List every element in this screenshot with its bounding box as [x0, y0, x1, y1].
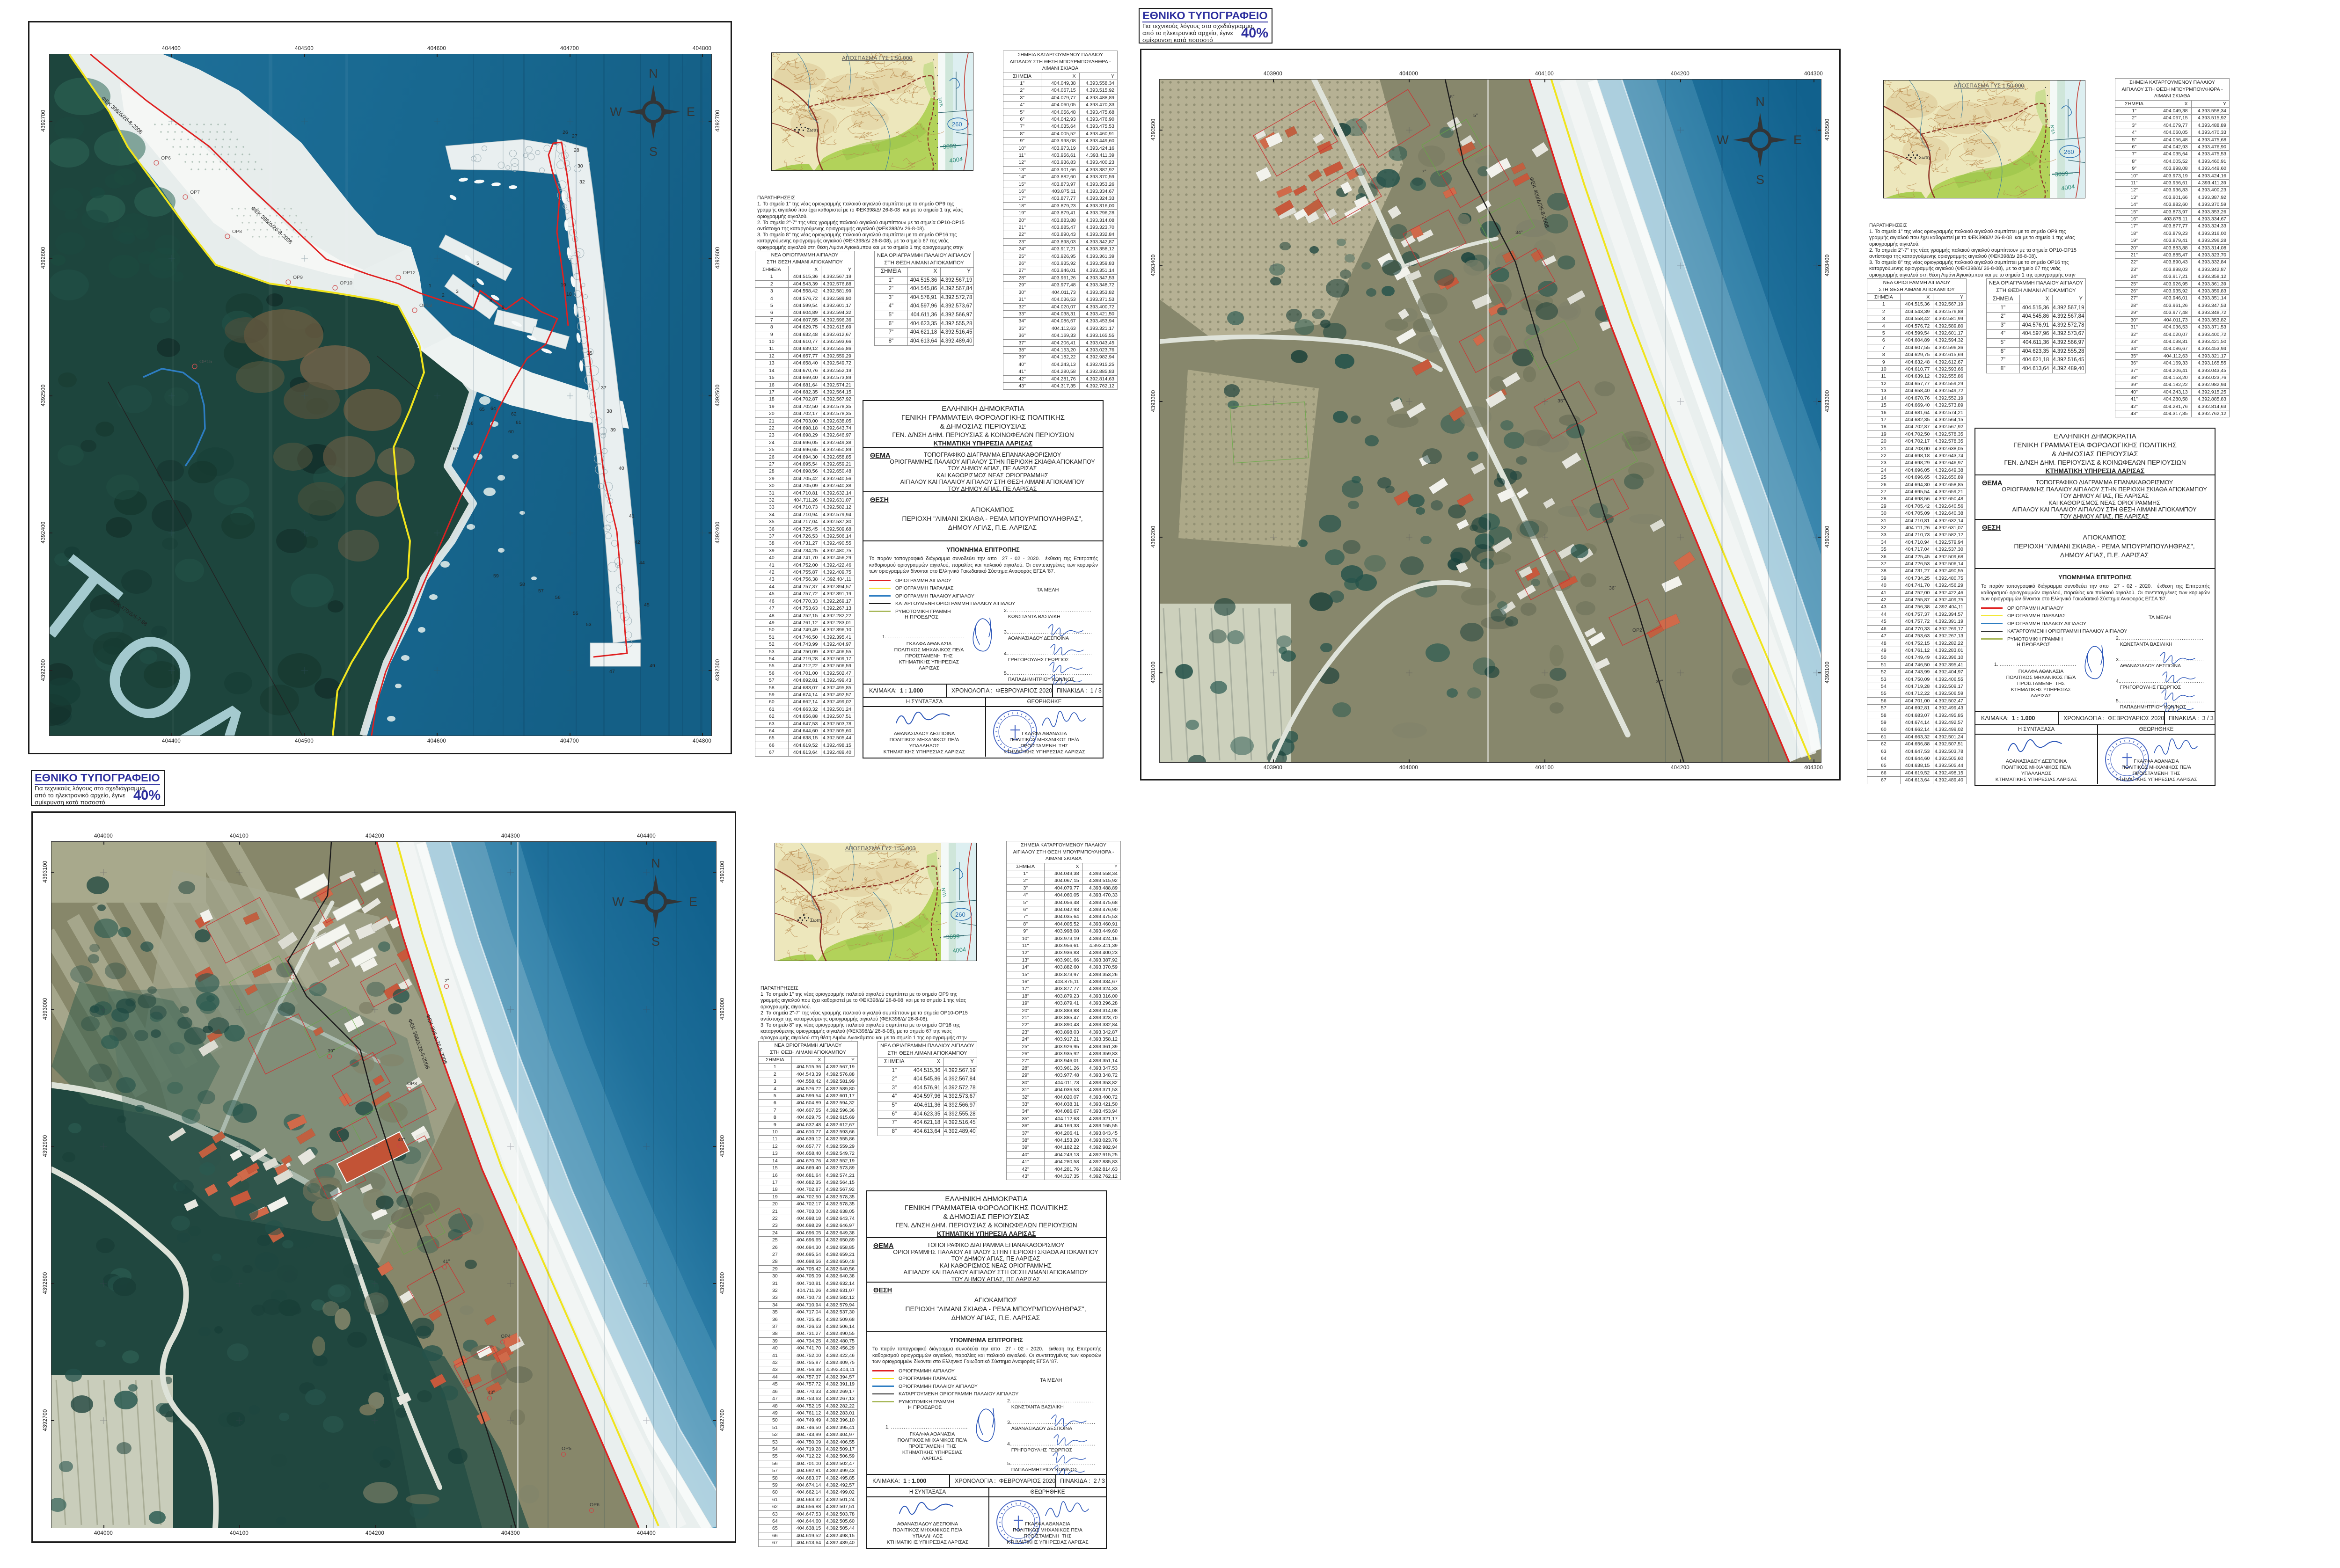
svg-text:60: 60 — [508, 429, 514, 435]
svg-text:19: 19 — [561, 282, 566, 288]
svg-text:ΟΡ6: ΟΡ6 — [590, 1502, 600, 1508]
svg-text:Σωτη: Σωτη — [1919, 155, 1930, 160]
svg-text:32: 32 — [579, 179, 585, 185]
svg-text:ΟΡ5: ΟΡ5 — [562, 1446, 571, 1451]
svg-text:ΟΡ7: ΟΡ7 — [190, 190, 200, 195]
svg-text:7ʺ: 7ʺ — [1422, 169, 1426, 175]
svg-text:57: 57 — [538, 588, 544, 594]
svg-text:5ʺ: 5ʺ — [1473, 113, 1478, 118]
svg-text:18: 18 — [566, 292, 572, 297]
svg-text:36ʺ: 36ʺ — [1609, 585, 1616, 591]
svg-text:64: 64 — [490, 406, 496, 411]
svg-text:E: E — [687, 105, 695, 119]
svg-text:2: 2 — [442, 292, 445, 298]
svg-text:49: 49 — [650, 663, 655, 669]
svg-text:N: N — [1755, 95, 1765, 109]
svg-text:59: 59 — [493, 573, 499, 579]
svg-text:56: 56 — [555, 595, 561, 600]
svg-text:ΟΡ3: ΟΡ3 — [407, 1081, 417, 1087]
svg-text:35: 35 — [587, 350, 592, 356]
svg-text:260: 260 — [955, 911, 965, 918]
svg-text:ΑΠΟΣΠΑΣΜΑ ΓΥΣ 1:50.000: ΑΠΟΣΠΑΣΜΑ ΓΥΣ 1:50.000 — [842, 55, 913, 61]
svg-text:27: 27 — [572, 133, 578, 139]
svg-text:260: 260 — [2064, 148, 2074, 155]
svg-text:ΟΡ13: ΟΡ13 — [419, 303, 432, 308]
svg-text:W: W — [1717, 133, 1729, 147]
svg-text:40ʺ: 40ʺ — [398, 1137, 405, 1143]
svg-text:65: 65 — [479, 407, 485, 412]
svg-text:S: S — [1756, 173, 1764, 187]
svg-text:S: S — [649, 145, 658, 159]
svg-text:39ʺ: 39ʺ — [328, 1048, 335, 1054]
svg-text:41: 41 — [629, 513, 635, 519]
svg-text:ΟΡ8: ΟΡ8 — [232, 229, 242, 234]
svg-text:6ʺ: 6ʺ — [1450, 94, 1455, 100]
svg-text:ΟΡ6: ΟΡ6 — [161, 155, 171, 161]
svg-text:43ʺ: 43ʺ — [488, 1390, 495, 1395]
svg-text:30: 30 — [578, 163, 583, 169]
svg-text:E: E — [1793, 133, 1802, 147]
svg-text:35ʺ: 35ʺ — [1558, 398, 1565, 404]
svg-text:38ʺ: 38ʺ — [290, 969, 298, 974]
svg-text:ΑΠΟΣΠΑΣΜΑ ΓΥΣ 1:50.000: ΑΠΟΣΠΑΣΜΑ ΓΥΣ 1:50.000 — [1954, 82, 2025, 89]
svg-text:260: 260 — [952, 121, 962, 128]
svg-text:ΑΠΟΣΠΑΣΜΑ ΓΥΣ 1:50.000: ΑΠΟΣΠΑΣΜΑ ΓΥΣ 1:50.000 — [845, 845, 916, 852]
svg-text:W: W — [612, 895, 624, 909]
svg-text:E: E — [689, 895, 697, 909]
svg-text:N: N — [651, 856, 660, 870]
svg-text:ΟΡ4: ΟΡ4 — [501, 1334, 511, 1339]
svg-text:66: 66 — [468, 421, 474, 426]
svg-text:1: 1 — [429, 283, 431, 289]
svg-text:S: S — [651, 934, 660, 948]
svg-text:Σωτη: Σωτη — [807, 128, 818, 133]
svg-text:W: W — [610, 105, 622, 119]
svg-text:47: 47 — [609, 669, 615, 674]
svg-text:37ʺ: 37ʺ — [1656, 679, 1663, 685]
svg-text:42: 42 — [635, 540, 640, 545]
svg-text:26: 26 — [563, 130, 568, 135]
svg-text:ΟΡ2: ΟΡ2 — [1632, 627, 1642, 633]
svg-text:5: 5 — [476, 261, 479, 266]
svg-text:2ʺ: 2ʺ — [445, 978, 449, 984]
svg-text:ΟΡ9: ΟΡ9 — [293, 275, 303, 280]
svg-text:62: 62 — [511, 411, 517, 417]
svg-text:44: 44 — [639, 560, 645, 566]
svg-text:40: 40 — [619, 466, 624, 471]
svg-text:67: 67 — [453, 446, 459, 452]
svg-text:8: 8 — [490, 298, 492, 304]
svg-text:38: 38 — [607, 408, 612, 414]
svg-text:45: 45 — [644, 602, 650, 608]
svg-text:61: 61 — [516, 420, 521, 425]
svg-text:39: 39 — [610, 427, 616, 433]
svg-text:ΟΡ12: ΟΡ12 — [403, 270, 416, 276]
svg-text:ΟΡ15: ΟΡ15 — [199, 359, 212, 365]
svg-text:N: N — [649, 66, 658, 80]
svg-text:34ʺ: 34ʺ — [1515, 230, 1523, 235]
svg-text:3: 3 — [456, 289, 459, 294]
svg-text:53: 53 — [586, 622, 592, 627]
svg-text:Σωτη: Σωτη — [810, 918, 821, 923]
svg-text:41ʺ: 41ʺ — [443, 1259, 450, 1264]
svg-text:55: 55 — [573, 611, 578, 616]
